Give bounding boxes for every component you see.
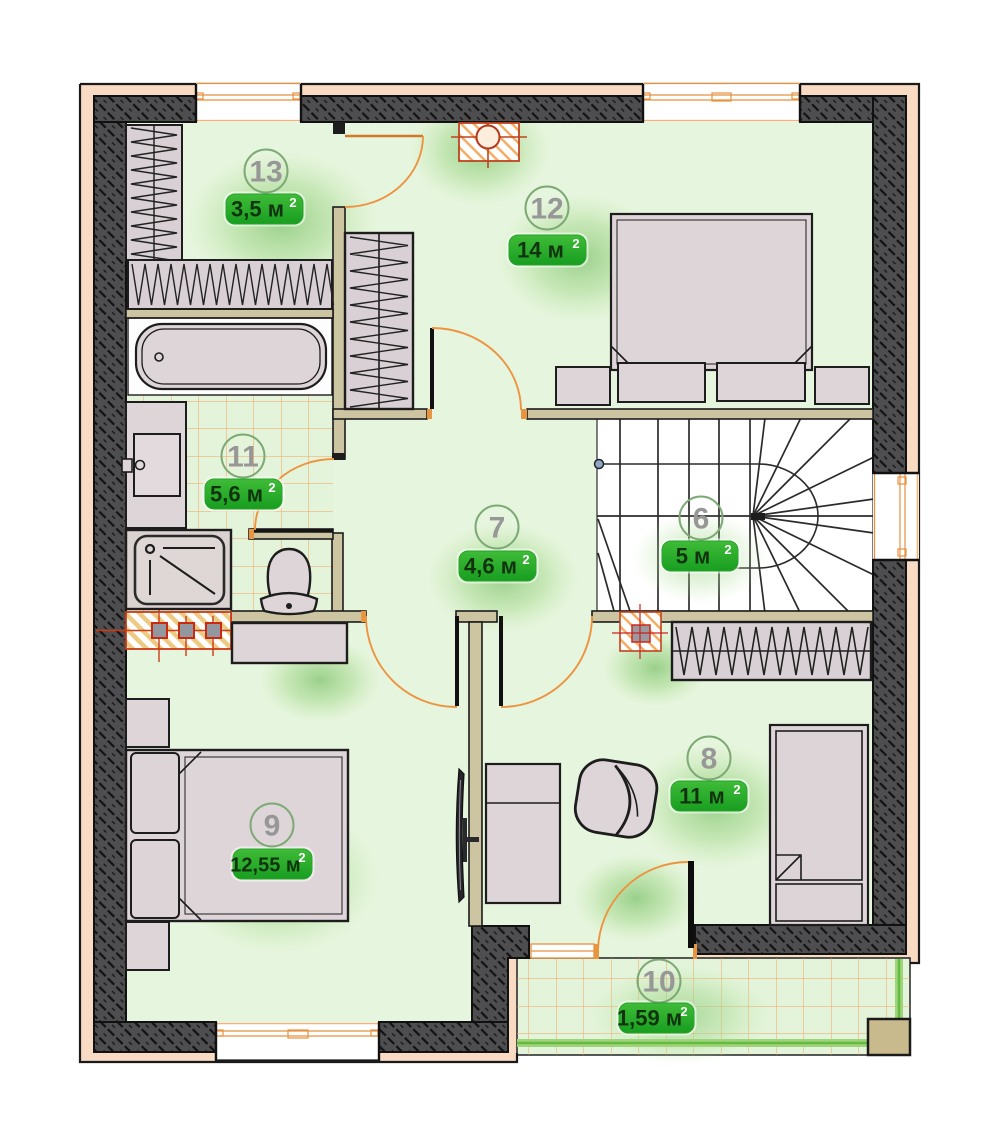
- svg-text:11: 11: [227, 441, 259, 474]
- svg-text:9: 9: [264, 810, 281, 843]
- svg-text:2: 2: [724, 542, 731, 557]
- svg-text:2: 2: [680, 1004, 687, 1019]
- svg-text:5,6 м: 5,6 м: [210, 482, 263, 507]
- svg-text:5 м: 5 м: [676, 544, 711, 569]
- svg-text:7: 7: [489, 512, 506, 545]
- svg-text:2: 2: [572, 236, 579, 251]
- svg-text:2: 2: [522, 552, 529, 567]
- svg-text:12: 12: [530, 193, 563, 226]
- svg-text:2: 2: [733, 782, 740, 797]
- svg-text:2: 2: [268, 480, 275, 495]
- svg-text:10: 10: [642, 966, 675, 999]
- svg-text:6: 6: [693, 503, 710, 536]
- svg-text:4,6 м: 4,6 м: [464, 554, 517, 579]
- svg-text:12,55 м: 12,55 м: [230, 855, 300, 877]
- svg-text:2: 2: [298, 850, 305, 865]
- svg-text:14 м: 14 м: [517, 238, 564, 263]
- svg-text:13: 13: [249, 156, 282, 189]
- svg-text:2: 2: [289, 195, 296, 210]
- svg-text:8: 8: [701, 743, 718, 776]
- svg-text:1,59 м: 1,59 м: [617, 1006, 682, 1031]
- svg-text:11 м: 11 м: [679, 784, 725, 809]
- svg-text:3,5 м: 3,5 м: [231, 197, 284, 222]
